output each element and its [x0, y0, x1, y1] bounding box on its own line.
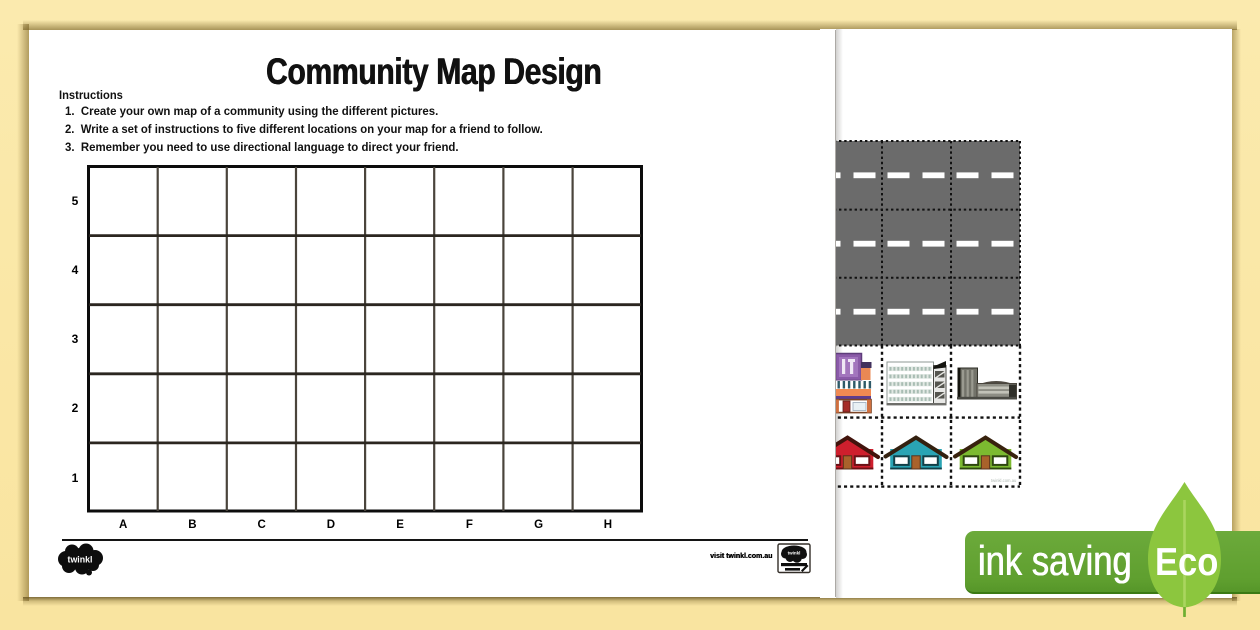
- svg-text:twinkl: twinkl: [68, 554, 93, 564]
- svg-text:twinkl.com.au: twinkl.com.au: [991, 478, 1017, 483]
- svg-text:twinkl: twinkl: [788, 551, 801, 556]
